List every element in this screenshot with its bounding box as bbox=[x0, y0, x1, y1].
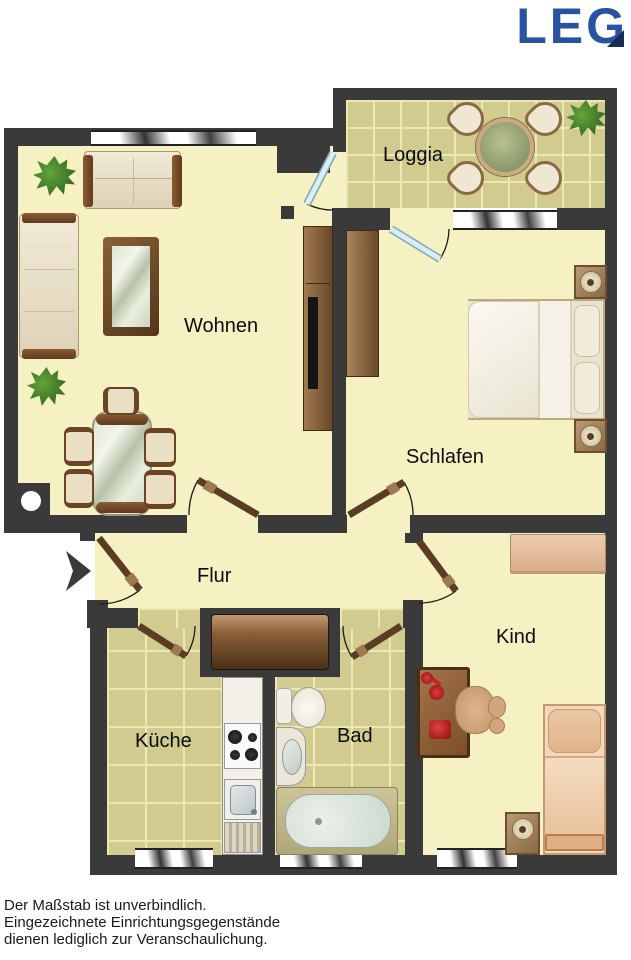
drain bbox=[315, 818, 322, 825]
toilet bbox=[291, 687, 326, 728]
wall bbox=[332, 230, 346, 515]
wall bbox=[87, 608, 138, 628]
duvet bbox=[468, 301, 540, 418]
leg-logo: LEG bbox=[460, 0, 628, 56]
wall bbox=[410, 515, 617, 533]
dresser bbox=[510, 534, 606, 574]
pillow bbox=[574, 362, 600, 414]
sofa-armrest bbox=[22, 349, 76, 359]
disclaimer-line: Eingezeichnete Einrichtungsgegenstände bbox=[4, 914, 280, 931]
logo-arrow-icon bbox=[607, 30, 624, 47]
wall bbox=[258, 515, 347, 533]
room-label-wohnen: Wohnen bbox=[184, 315, 258, 338]
room-label-loggia: Loggia bbox=[383, 144, 443, 167]
column bbox=[21, 491, 41, 511]
single-bed bbox=[543, 704, 606, 855]
stove bbox=[224, 723, 261, 769]
duct bbox=[281, 206, 294, 219]
blanket bbox=[545, 756, 604, 834]
disclaimer: Der Maßstab ist unverbindlich. Eingezeic… bbox=[4, 897, 280, 948]
nightstand bbox=[574, 265, 607, 299]
lamp bbox=[512, 818, 534, 840]
lamp bbox=[580, 425, 602, 447]
faucet bbox=[251, 809, 257, 815]
lamp bbox=[580, 271, 602, 293]
wall bbox=[333, 88, 346, 152]
floor-plan-page: LEG bbox=[0, 0, 631, 960]
wall bbox=[45, 515, 187, 533]
room-label-kueche: Küche bbox=[135, 730, 192, 753]
dining-chair bbox=[103, 387, 139, 415]
wall bbox=[333, 88, 617, 100]
flur-floor bbox=[95, 533, 405, 608]
window bbox=[91, 130, 256, 146]
washbasin bbox=[276, 727, 306, 786]
tv-sideboard bbox=[303, 226, 333, 431]
door-opening bbox=[138, 608, 200, 628]
hall-cabinet bbox=[211, 614, 329, 670]
dining-table bbox=[92, 411, 152, 516]
room-label-kind: Kind bbox=[496, 626, 536, 649]
window bbox=[135, 848, 213, 869]
wardrobe bbox=[346, 230, 379, 377]
door-opening bbox=[187, 515, 258, 533]
balcony-door-opening bbox=[332, 152, 346, 208]
door-opening bbox=[347, 515, 410, 533]
toilet-tank bbox=[276, 688, 292, 724]
toy bbox=[429, 720, 451, 739]
wall bbox=[90, 605, 107, 855]
wall bbox=[332, 208, 390, 230]
room-label-flur: Flur bbox=[197, 565, 231, 588]
wall bbox=[80, 533, 95, 541]
wall bbox=[262, 677, 275, 855]
door-opening bbox=[405, 543, 423, 600]
door-opening bbox=[340, 608, 403, 628]
disclaimer-line: dienen lediglich zur Veranschaulichung. bbox=[4, 931, 280, 948]
teddy-arm bbox=[488, 696, 506, 718]
wall bbox=[557, 208, 605, 230]
pillow bbox=[574, 305, 600, 357]
sofa-armrest bbox=[83, 155, 93, 207]
cabinet-front bbox=[224, 822, 261, 853]
room-label-schlafen: Schlafen bbox=[406, 446, 484, 469]
window bbox=[453, 210, 557, 230]
wall bbox=[605, 88, 617, 875]
nightstand bbox=[505, 812, 540, 855]
room-label-bad: Bad bbox=[337, 725, 373, 748]
bathtub bbox=[276, 787, 398, 855]
nightstand bbox=[574, 419, 607, 453]
footboard bbox=[545, 834, 604, 851]
sofa-two-seat bbox=[84, 151, 181, 209]
sofa-three-seat bbox=[19, 214, 79, 358]
dining-chair bbox=[64, 427, 94, 466]
sink bbox=[224, 779, 261, 820]
desk-lamp bbox=[421, 672, 433, 684]
blanket-fold bbox=[538, 301, 572, 418]
dining-chair bbox=[64, 469, 94, 508]
dining-chair bbox=[144, 428, 176, 467]
sofa-armrest bbox=[22, 213, 76, 223]
coffee-table bbox=[103, 237, 159, 336]
pillow bbox=[548, 709, 601, 753]
sofa-armrest bbox=[172, 155, 182, 207]
wall bbox=[405, 533, 423, 543]
disclaimer-line: Der Maßstab ist unverbindlich. bbox=[4, 897, 280, 914]
entrance-arrow-icon bbox=[66, 551, 91, 591]
double-bed bbox=[468, 299, 605, 420]
round-table bbox=[476, 118, 534, 176]
dining-chair bbox=[144, 470, 176, 509]
wall bbox=[277, 146, 330, 173]
balcony-door-opening bbox=[390, 208, 453, 230]
wall bbox=[4, 128, 18, 520]
teddy-arm bbox=[489, 718, 505, 734]
tv bbox=[308, 297, 318, 389]
